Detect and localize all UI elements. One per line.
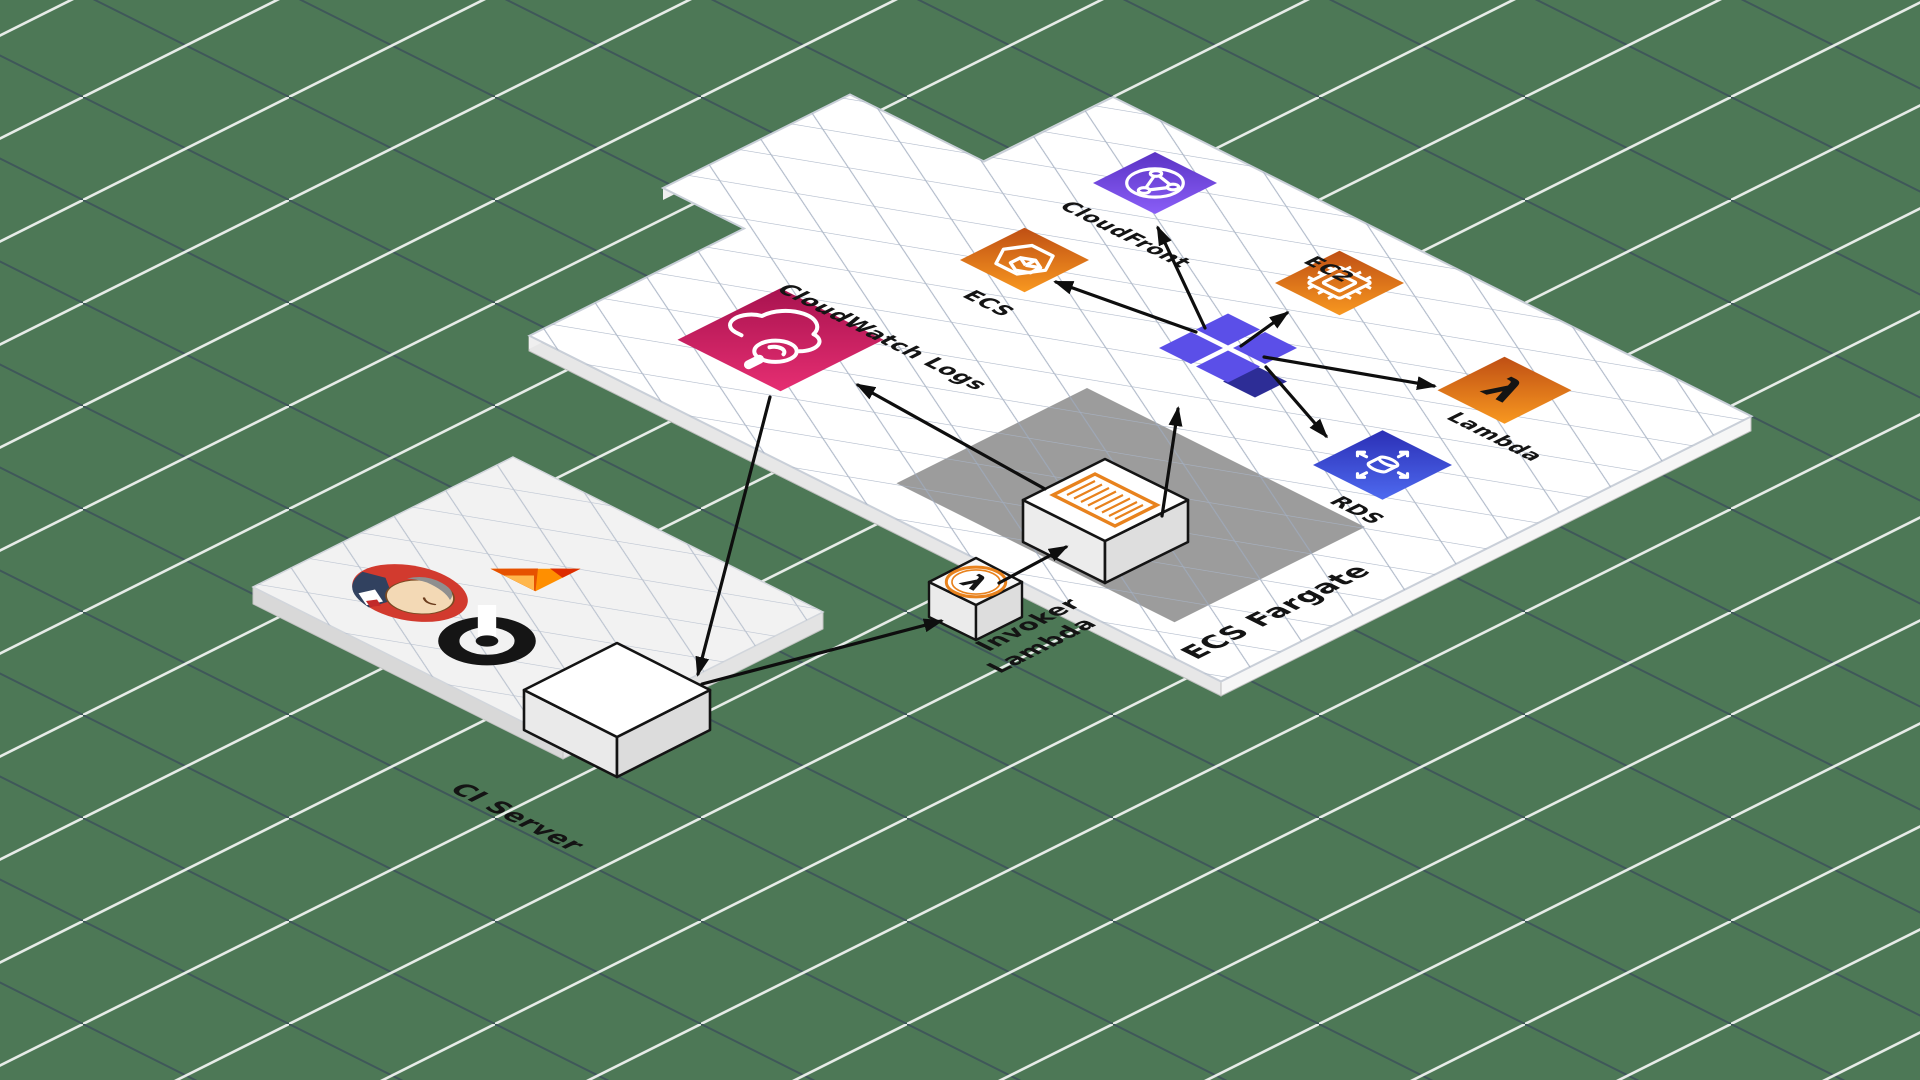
isometric-architecture-svg: λ: [0, 0, 1920, 1080]
diagram-canvas: λ: [0, 0, 1920, 1080]
